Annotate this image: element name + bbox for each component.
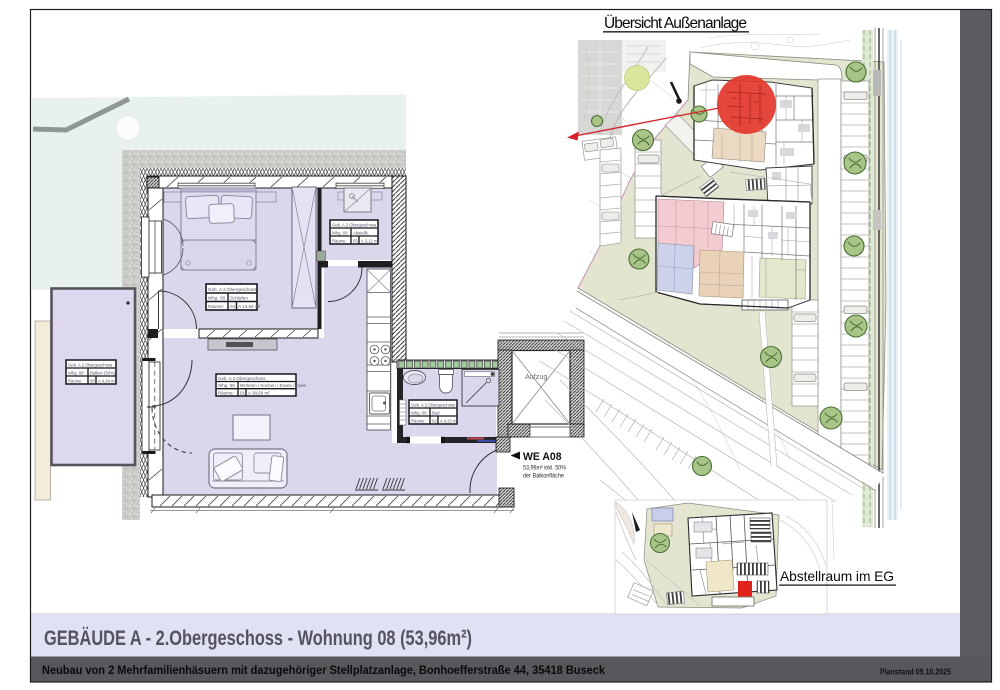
svg-text:Whg. 08: Whg. 08 xyxy=(332,231,348,236)
svg-text:Räume:: Räume: xyxy=(68,379,83,384)
svg-text:Räume:: Räume: xyxy=(208,304,224,309)
svg-text:GEBÄUDE A - 2.Obergeschoss - W: GEBÄUDE A - 2.Obergeschoss - Wohnung 08 … xyxy=(44,626,472,650)
svg-text:WE A08: WE A08 xyxy=(523,451,562,463)
svg-text:Wohnen / Kochen / Essen / Diel: Wohnen / Kochen / Essen / Diele xyxy=(240,383,306,388)
svg-text:Abstellraum im EG: Abstellraum im EG xyxy=(780,569,894,584)
svg-text:08: 08 xyxy=(90,379,95,384)
svg-text:Whg. 08: Whg. 08 xyxy=(68,371,84,376)
svg-text:Räume:: Räume: xyxy=(218,391,234,396)
svg-text:Whg. 08: Whg. 08 xyxy=(218,383,235,388)
svg-text:A 38,60 m²: A 38,60 m² xyxy=(248,391,270,396)
svg-text:01: 01 xyxy=(240,391,246,396)
svg-text:Räume:: Räume: xyxy=(332,239,347,244)
svg-text:Geb. A 2.Obergeschoss: Geb. A 2.Obergeschoss xyxy=(411,403,455,408)
svg-text:04: 04 xyxy=(230,304,236,309)
svg-text:Whg. 08: Whg. 08 xyxy=(208,296,226,301)
svg-text:Geb. A 2.Obergeschoss: Geb. A 2.Obergeschoss xyxy=(218,376,266,381)
svg-text:Planstand 09.10.2025: Planstand 09.10.2025 xyxy=(880,667,951,677)
svg-text:Neubau von 2 Mehrfamilienhäsue: Neubau von 2 Mehrfamilienhäsuern mit daz… xyxy=(42,663,605,677)
svg-text:Abstellk.: Abstellk. xyxy=(353,231,369,236)
svg-text:02: 02 xyxy=(432,419,437,424)
svg-text:der Balkonfläche: der Balkonfläche xyxy=(523,473,564,480)
svg-text:Balkon (50%): Balkon (50%) xyxy=(90,371,116,376)
svg-text:Schlafen: Schlafen xyxy=(230,296,248,301)
svg-text:A 13,84 m²: A 13,84 m² xyxy=(238,304,261,309)
svg-text:A 4,23 m²: A 4,23 m² xyxy=(440,419,459,424)
svg-text:Geb. A 2.Obergeschoss: Geb. A 2.Obergeschoss xyxy=(208,287,257,292)
svg-text:Übersicht Außenanlage: Übersicht Außenanlage xyxy=(604,14,747,32)
svg-text:Räume:: Räume: xyxy=(411,419,426,424)
svg-text:53,96m² inkl. 50%: 53,96m² inkl. 50% xyxy=(523,465,566,472)
svg-text:03: 03 xyxy=(353,239,358,244)
svg-text:A 4,34 m²: A 4,34 m² xyxy=(98,379,117,384)
svg-text:Bad: Bad xyxy=(432,411,440,416)
svg-text:Geb. A 2.Obergeschoss: Geb. A 2.Obergeschoss xyxy=(332,223,376,228)
svg-text:Whg. 08: Whg. 08 xyxy=(411,411,427,416)
svg-text:Geb. A 2.Obergeschoss: Geb. A 2.Obergeschoss xyxy=(68,363,112,368)
svg-text:A 3,12 m²: A 3,12 m² xyxy=(361,239,380,244)
svg-text:Aufzug: Aufzug xyxy=(525,372,547,381)
